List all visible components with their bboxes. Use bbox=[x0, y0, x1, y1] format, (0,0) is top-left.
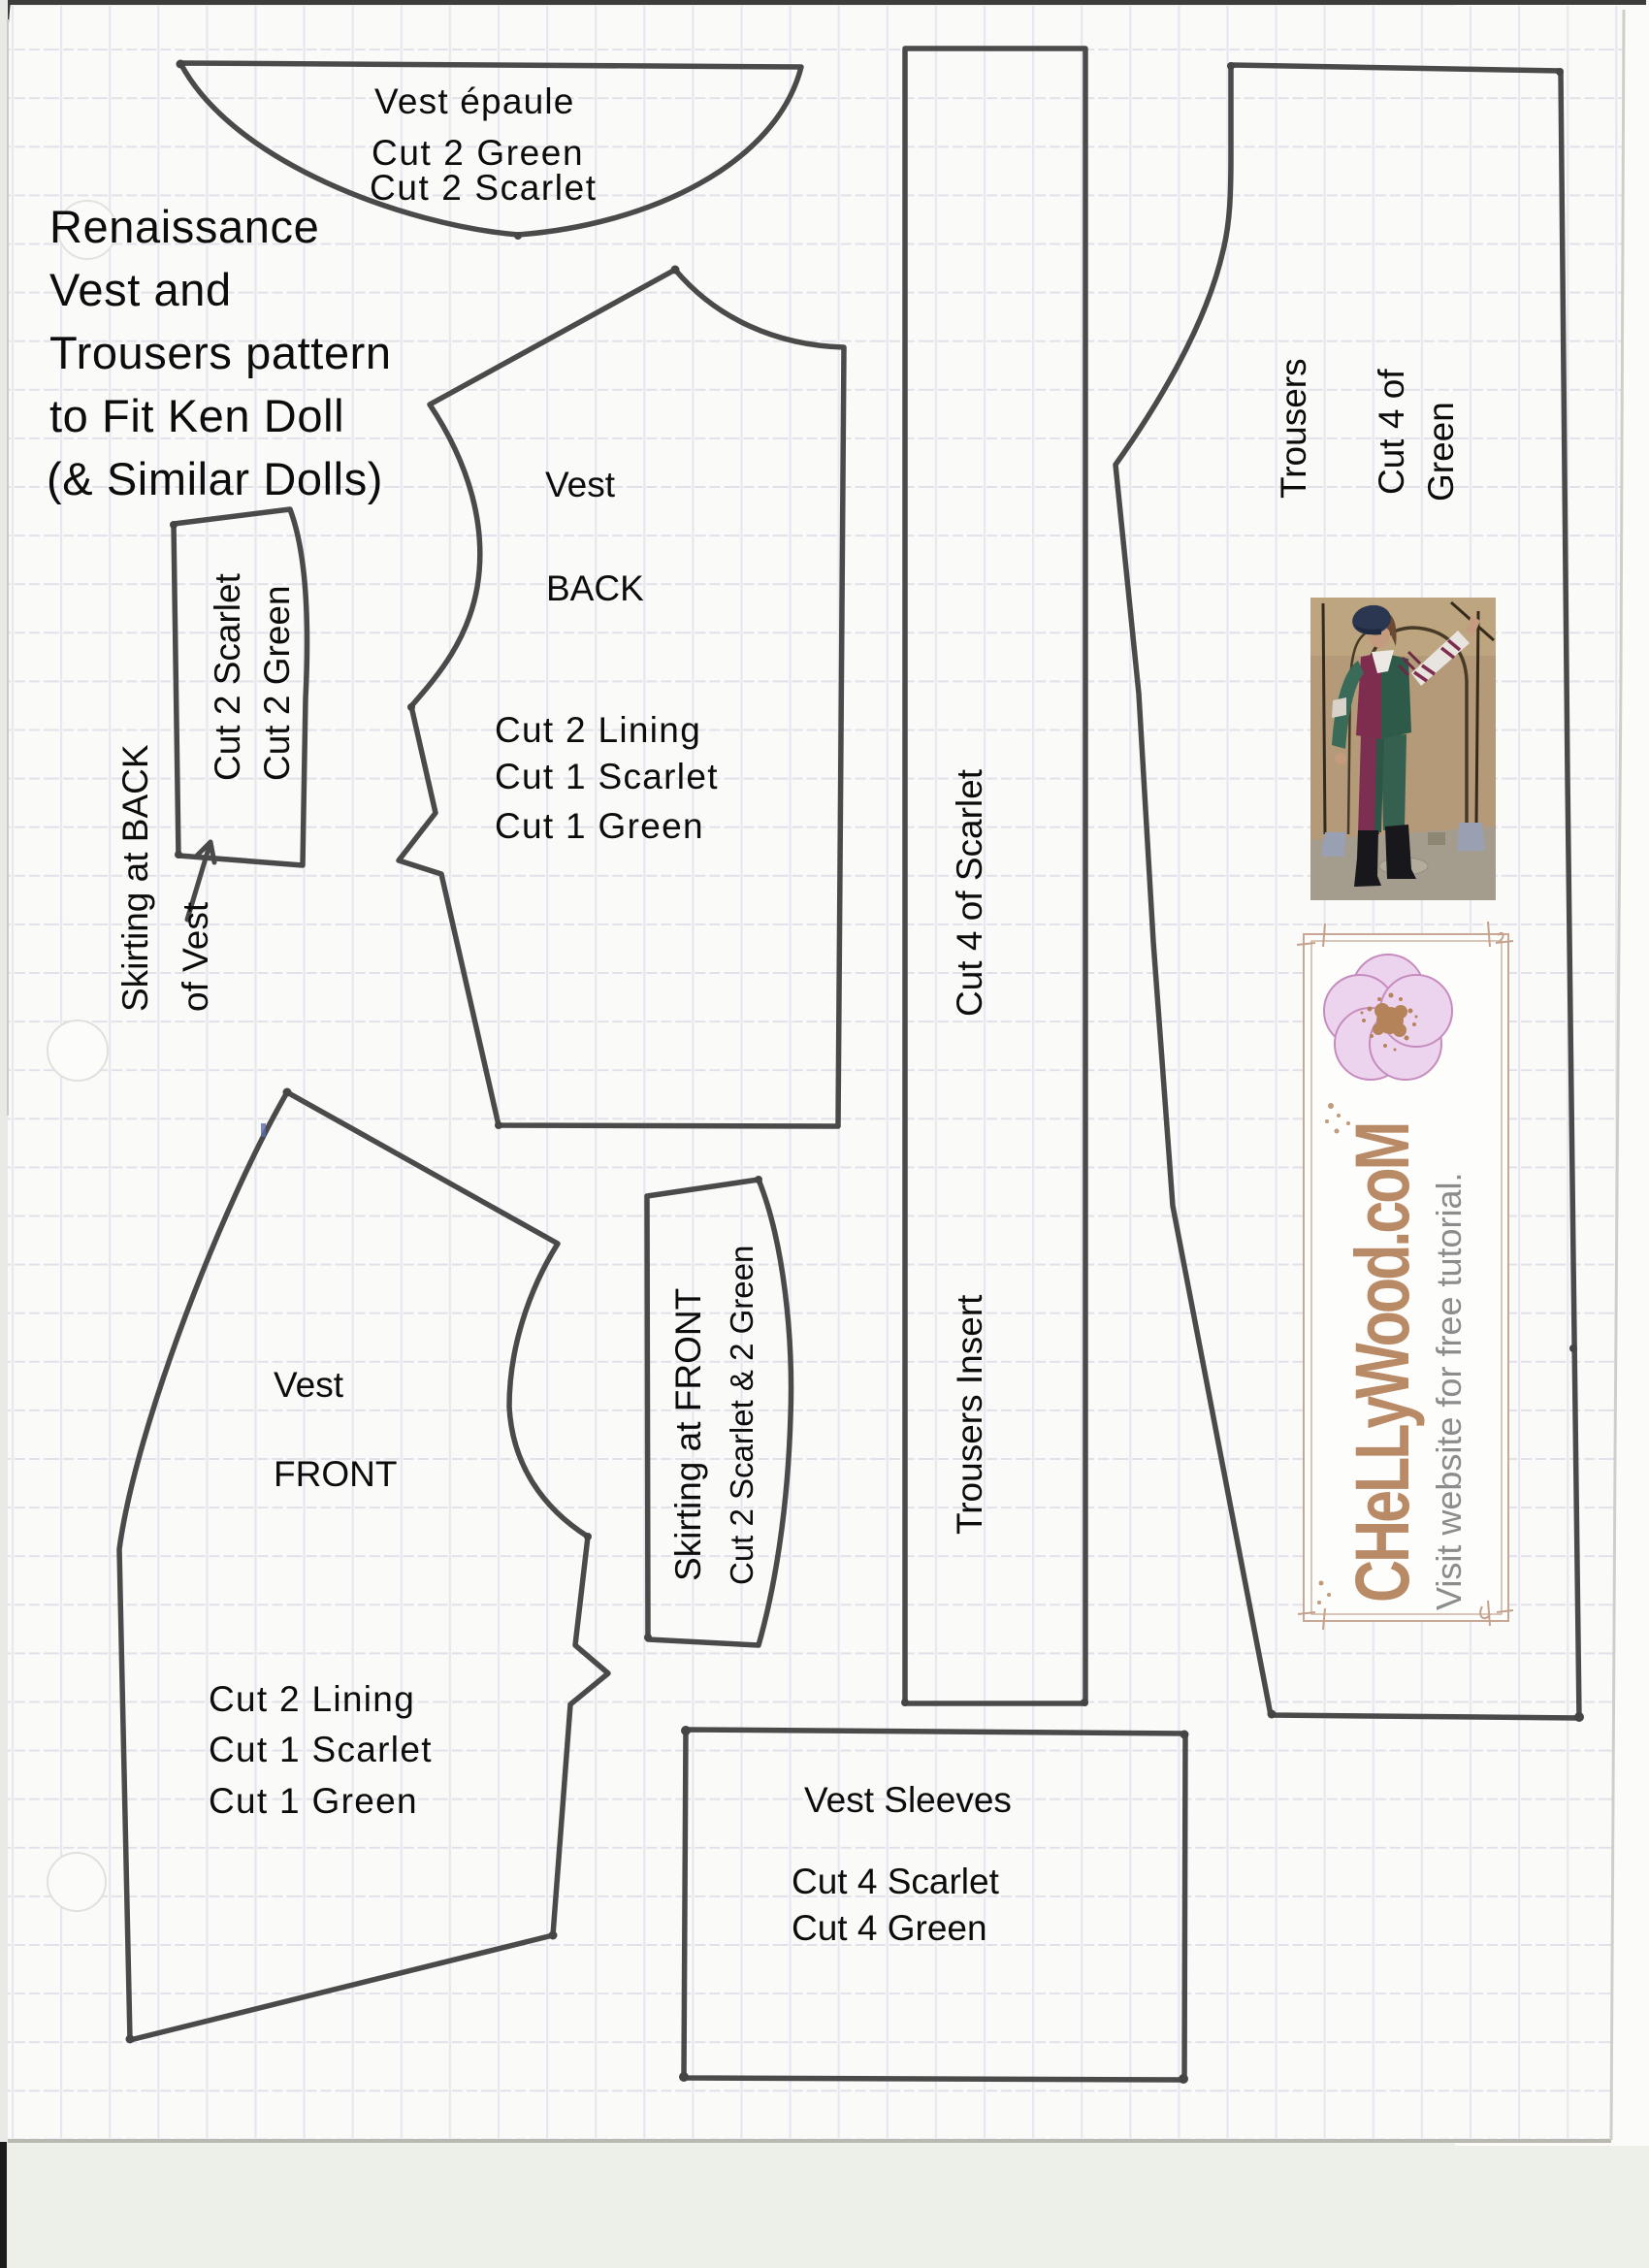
svg-text:to Fit Ken Doll: to Fit Ken Doll bbox=[49, 390, 344, 441]
svg-text:Cut 4 of: Cut 4 of bbox=[1372, 369, 1411, 495]
svg-text:Cut 2 Scarlet: Cut 2 Scarlet bbox=[208, 572, 247, 781]
svg-text:(& Similar Dolls): (& Similar Dolls) bbox=[47, 453, 383, 504]
svg-text:Vest Sleeves: Vest Sleeves bbox=[804, 1780, 1012, 1820]
svg-text:Cut 2 Green: Cut 2 Green bbox=[372, 133, 584, 173]
svg-text:Trousers: Trousers bbox=[1274, 358, 1313, 499]
svg-text:FRONT: FRONT bbox=[274, 1454, 397, 1494]
svg-text:Cut 2 Scarlet: Cut 2 Scarlet bbox=[370, 168, 598, 208]
svg-text:Cut 4 Green: Cut 4 Green bbox=[792, 1908, 987, 1948]
svg-text:Visit website for free tutoria: Visit website for free tutorial. bbox=[1429, 1172, 1469, 1610]
svg-text:Cut 1 Green: Cut 1 Green bbox=[209, 1781, 418, 1821]
svg-text:Green: Green bbox=[1421, 402, 1461, 502]
svg-text:Vest and: Vest and bbox=[49, 264, 232, 315]
svg-text:Trousers pattern: Trousers pattern bbox=[49, 327, 392, 378]
svg-text:Trousers Insert: Trousers Insert bbox=[950, 1294, 989, 1535]
svg-text:Skirting at FRONT: Skirting at FRONT bbox=[668, 1288, 708, 1581]
svg-text:Vest: Vest bbox=[274, 1365, 344, 1405]
svg-text:BACK: BACK bbox=[546, 568, 644, 608]
svg-text:Vest épaule: Vest épaule bbox=[374, 81, 575, 121]
svg-text:Cut 2 Green: Cut 2 Green bbox=[257, 585, 297, 781]
svg-text:Cut 1 Scarlet: Cut 1 Scarlet bbox=[495, 757, 719, 796]
svg-text:Renaissance: Renaissance bbox=[49, 201, 319, 252]
svg-text:Skirting at BACK: Skirting at BACK bbox=[115, 744, 155, 1012]
svg-text:of Vest: of Vest bbox=[176, 901, 215, 1012]
svg-text:Cut 2 Lining: Cut 2 Lining bbox=[495, 710, 701, 750]
svg-text:Cut 2 Lining: Cut 2 Lining bbox=[209, 1679, 415, 1719]
svg-text:CHeLLyWood.coM: CHeLLyWood.coM bbox=[1339, 1124, 1425, 1603]
svg-text:Cut 4 of Scarlet: Cut 4 of Scarlet bbox=[950, 768, 989, 1017]
svg-text:Cut 1 Scarlet: Cut 1 Scarlet bbox=[209, 1730, 433, 1769]
svg-text:Vest: Vest bbox=[545, 465, 616, 504]
svg-text:Cut 4 Scarlet: Cut 4 Scarlet bbox=[792, 1862, 1000, 1901]
svg-text:Cut 1 Green: Cut 1 Green bbox=[495, 806, 704, 846]
svg-text:Cut 2 Scarlet & 2 Green: Cut 2 Scarlet & 2 Green bbox=[724, 1246, 760, 1585]
